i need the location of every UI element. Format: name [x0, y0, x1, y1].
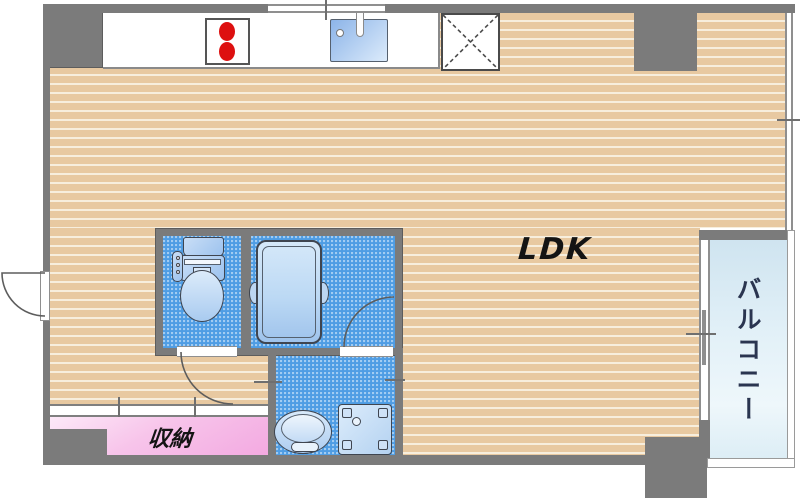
- sliding-window-overlap: [702, 310, 706, 365]
- pan-corner: [342, 440, 352, 450]
- balcony-bottom-rail: [707, 458, 795, 468]
- refrigerator-space-icon: [441, 13, 500, 71]
- toilet-lid-band: [184, 259, 221, 265]
- pan-corner: [342, 408, 352, 418]
- bathroom-door-leaf: [340, 346, 393, 357]
- pan-corner: [378, 408, 388, 418]
- washbasin-inner: [281, 414, 325, 443]
- washbasin-drain: [291, 442, 319, 452]
- wall-left: [43, 4, 50, 465]
- toilet-bowl: [180, 270, 224, 322]
- balcony-room-label: バルコニー: [727, 243, 767, 458]
- washroom-wall-left: [268, 348, 276, 465]
- stove-burners-icon: [219, 42, 235, 61]
- washroom-wall-right: [395, 348, 403, 465]
- window-divider-tick: [686, 333, 716, 335]
- pillar-bottom: [645, 437, 707, 498]
- stove-burners-icon: [219, 22, 235, 41]
- toilet-button: [176, 256, 180, 260]
- wall-bottom: [43, 455, 645, 465]
- faucet-icon: [356, 12, 364, 37]
- ldk-room-label: LDK: [504, 232, 606, 266]
- opening-tick: [385, 379, 405, 381]
- kitchen-counter: [103, 13, 440, 69]
- pan-corner: [378, 440, 388, 450]
- wall-block-top-left: [45, 9, 103, 68]
- balcony-outer-rail: [787, 230, 795, 468]
- toilet-button: [176, 263, 180, 267]
- sink-hole: [336, 29, 344, 37]
- wall-top: [43, 4, 795, 13]
- east-window-icon: [785, 13, 793, 230]
- window-divider-tick: [325, 0, 327, 20]
- toilet-door-leaf: [177, 346, 237, 357]
- balcony-top-wall: [699, 230, 788, 240]
- pillar-top: [634, 10, 697, 71]
- storage-room-label: 収納: [109, 423, 232, 451]
- storage-opening-band: [50, 404, 268, 417]
- toilet-tank: [183, 237, 224, 257]
- window-divider-tick: [777, 119, 800, 121]
- wall-notch-bottom-left: [50, 429, 107, 462]
- pan-drain-hole: [352, 417, 361, 426]
- toilet-button: [176, 270, 180, 274]
- bathtub-inner-rim: [262, 246, 316, 338]
- floorplan-canvas: LDK 収納 バルコニー: [0, 0, 800, 500]
- opening-tick: [254, 381, 282, 383]
- entrance-door-leaf: [40, 271, 50, 321]
